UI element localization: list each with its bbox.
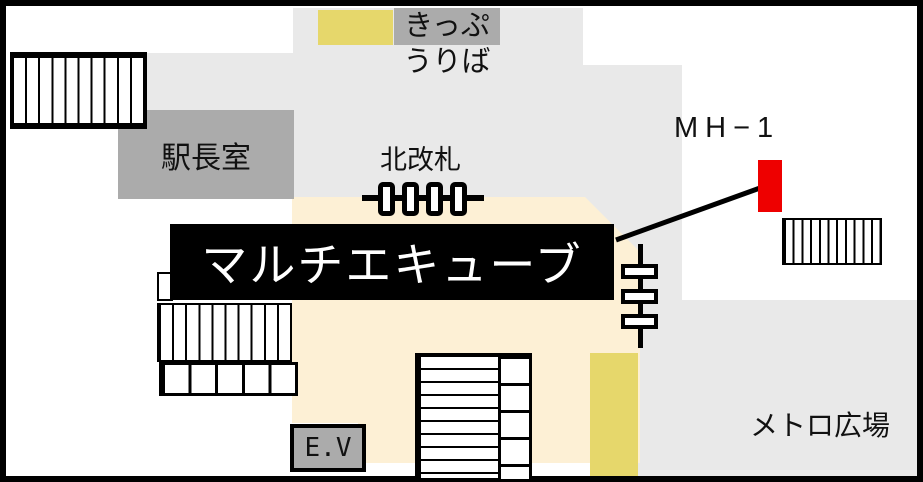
stairs-icon-bottom [415,353,507,478]
stairs-icon-top-left [10,52,147,129]
elevator-label: E.V [305,433,352,463]
ticket-office-label-line2: うりば [394,44,500,80]
ticket-gate-pillar-icon [378,182,395,216]
ticket-gate-pillar-icon [450,182,467,216]
metro-plaza-label: メトロ広場 [750,404,890,444]
ticket-gate-pillar-icon [426,182,443,216]
station-master-label: 駅長室 [161,133,251,177]
mh1-marker [758,160,782,212]
yellow-zone-bottom [590,353,638,476]
title-banner-label: マルチエキューブ [201,229,582,295]
stairs-icon-right [782,218,882,265]
metro-plaza-area [638,300,917,476]
corridor-area-left [145,53,293,110]
side-gate-bar-icon [621,289,658,304]
title-banner: マルチエキューブ [170,224,614,300]
stall-row-icon [157,303,292,362]
yellow-zone-top [318,10,393,45]
station-floor-map: 駅長室 マルチエキューブ E.V きっぷ うりば 北改札 MH−1 メトロ広場 [0,0,923,482]
escalator-icon-bottom [498,353,532,482]
side-gate-bar-icon [621,264,658,279]
elevator-box: E.V [290,424,366,472]
ticket-office-label: きっぷ うりば [394,8,500,80]
north-gate-label: 北改札 [380,138,461,177]
locker-row-icon [159,362,298,396]
ticket-gate-pillar-icon [402,182,419,216]
side-gate-bar-icon [621,314,658,329]
ticket-office-label-line1: きっぷ [394,8,500,44]
mh1-label: MH−1 [674,112,780,145]
